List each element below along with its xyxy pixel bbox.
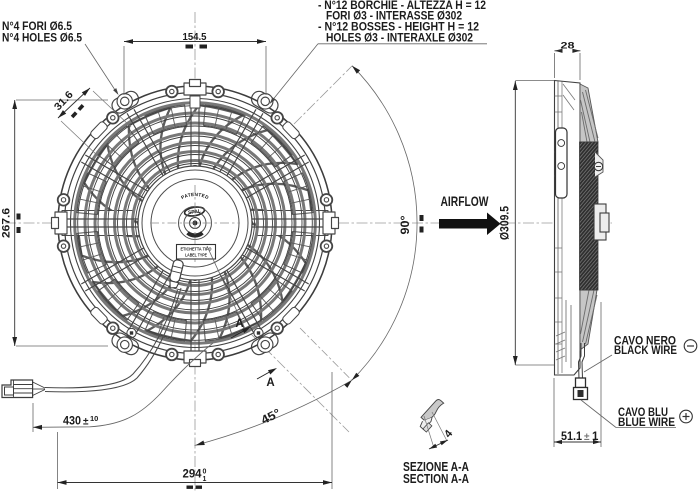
svg-text:BLACK WIRE: BLACK WIRE <box>614 345 677 357</box>
svg-text:LABEL TYPE: LABEL TYPE <box>185 253 207 258</box>
svg-text:ETICHETTA TIPO: ETICHETTA TIPO <box>181 247 212 252</box>
svg-text:A: A <box>266 377 274 389</box>
svg-text:A: A <box>235 318 243 330</box>
svg-text:10: 10 <box>90 414 98 423</box>
svg-text:267.6: 267.6 <box>1 208 13 238</box>
svg-text:1: 1 <box>592 431 599 443</box>
svg-text:±: ± <box>584 432 590 443</box>
svg-text:1: 1 <box>203 476 207 483</box>
svg-text:0: 0 <box>203 469 207 476</box>
svg-text:294: 294 <box>183 469 203 481</box>
svg-text:SECTION A-A: SECTION A-A <box>403 472 469 486</box>
svg-text:430: 430 <box>63 416 81 428</box>
svg-text:±: ± <box>83 417 89 428</box>
svg-text:154.5: 154.5 <box>183 31 207 43</box>
svg-text:90°: 90° <box>400 215 412 234</box>
svg-text:HOLES Ø3 - INTERAXLE Ø302: HOLES Ø3 - INTERAXLE Ø302 <box>326 33 473 45</box>
svg-text:N°4 HOLES Ø6.5: N°4 HOLES Ø6.5 <box>2 31 82 45</box>
svg-text:Ø309.5: Ø309.5 <box>498 206 512 240</box>
svg-text:AIRFLOW: AIRFLOW <box>441 193 490 209</box>
svg-text:51.1: 51.1 <box>561 431 583 443</box>
